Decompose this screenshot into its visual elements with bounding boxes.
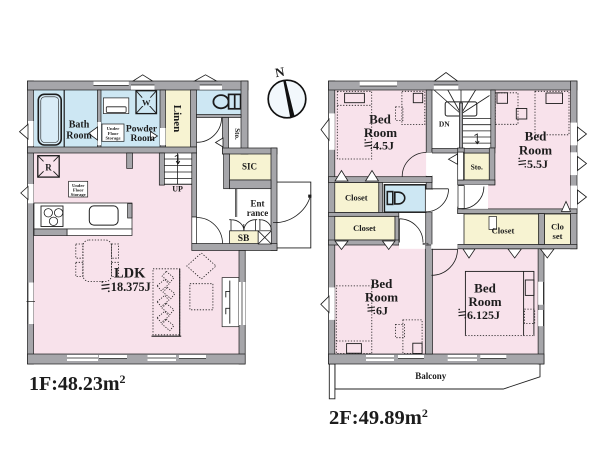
svg-text:Ent: Ent — [250, 199, 264, 209]
svg-text:Storage: Storage — [71, 192, 86, 197]
svg-text:1F:48.23m2: 1F:48.23m2 — [29, 372, 126, 395]
svg-text:Room: Room — [130, 134, 154, 144]
svg-text:UP: UP — [172, 185, 183, 194]
svg-text:Room: Room — [66, 131, 92, 142]
svg-text:Linen: Linen — [171, 105, 183, 133]
svg-text:Closet: Closet — [492, 226, 515, 236]
svg-text:set: set — [553, 231, 563, 241]
svg-text:rance: rance — [247, 208, 269, 218]
svg-text:Closet: Closet — [345, 193, 368, 203]
svg-text:Sto.: Sto. — [233, 128, 241, 140]
svg-text:Room: Room — [468, 294, 501, 309]
svg-text:4.5J: 4.5J — [373, 139, 394, 153]
svg-text:18.375J: 18.375J — [111, 280, 151, 294]
svg-text:Room: Room — [365, 289, 398, 304]
svg-text:Sto.: Sto. — [471, 163, 483, 172]
svg-text:DN: DN — [439, 120, 450, 129]
svg-text:Balcony: Balcony — [415, 371, 447, 381]
svg-text:Bed: Bed — [525, 129, 547, 144]
svg-text:R: R — [45, 162, 52, 172]
svg-text:5.5J: 5.5J — [527, 157, 548, 171]
svg-text:2F:49.89m2: 2F:49.89m2 — [329, 406, 428, 429]
svg-text:Clo: Clo — [551, 222, 564, 232]
svg-text:Bath: Bath — [69, 120, 90, 131]
svg-text:6.125J: 6.125J — [467, 308, 500, 322]
svg-text:SIC: SIC — [242, 162, 257, 172]
svg-text:6J: 6J — [376, 304, 388, 318]
svg-text:Closet: Closet — [353, 223, 376, 233]
svg-text:Storage: Storage — [105, 135, 120, 140]
svg-text:W: W — [142, 98, 151, 108]
svg-text:Room: Room — [519, 142, 552, 157]
svg-text:SB: SB — [238, 234, 250, 244]
